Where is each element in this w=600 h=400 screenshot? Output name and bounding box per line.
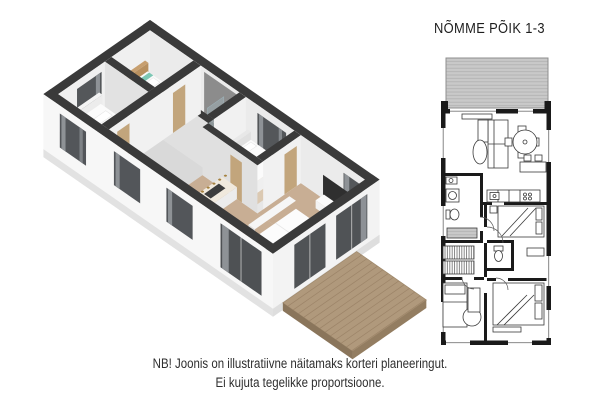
floorplan-sheet: NÕMME PÕIK 1-3 — [0, 0, 600, 400]
terrace-2d — [441, 58, 551, 109]
floorplan-2d — [432, 50, 564, 350]
dresser — [527, 248, 544, 256]
coffee-table — [473, 140, 487, 164]
door-wood — [284, 146, 296, 195]
curtain — [222, 224, 229, 273]
door-wood — [173, 84, 185, 133]
curtain — [116, 152, 120, 189]
kitchen-2d — [487, 190, 540, 202]
sideboard — [462, 114, 492, 119]
disclaimer-line-1: NB! Joonis on illustratiivne näitamaks k… — [45, 355, 555, 374]
disclaimer: NB! Joonis on illustratiivne näitamaks k… — [45, 355, 555, 392]
desk-small — [468, 288, 480, 312]
master-bed-2d — [490, 206, 544, 237]
bed-2d-double — [493, 283, 544, 332]
wardrobe — [443, 261, 474, 274]
curtain — [361, 195, 367, 243]
curtain — [168, 189, 172, 226]
disclaimer-line-2: Ei kujuta tegelikke proportsioone. — [45, 374, 555, 393]
curtain — [259, 114, 263, 151]
bathroom-fixtures — [446, 177, 477, 238]
isometric-apartment-view — [0, 0, 470, 372]
dining-table — [505, 126, 539, 158]
desk — [520, 155, 546, 172]
curtain — [79, 127, 82, 163]
wc-toilet — [494, 246, 503, 262]
plan-title: NÕMME PÕIK 1-3 — [434, 20, 545, 37]
furniture-2d — [443, 114, 546, 332]
wardrobe — [443, 246, 474, 259]
curtain — [61, 115, 65, 152]
